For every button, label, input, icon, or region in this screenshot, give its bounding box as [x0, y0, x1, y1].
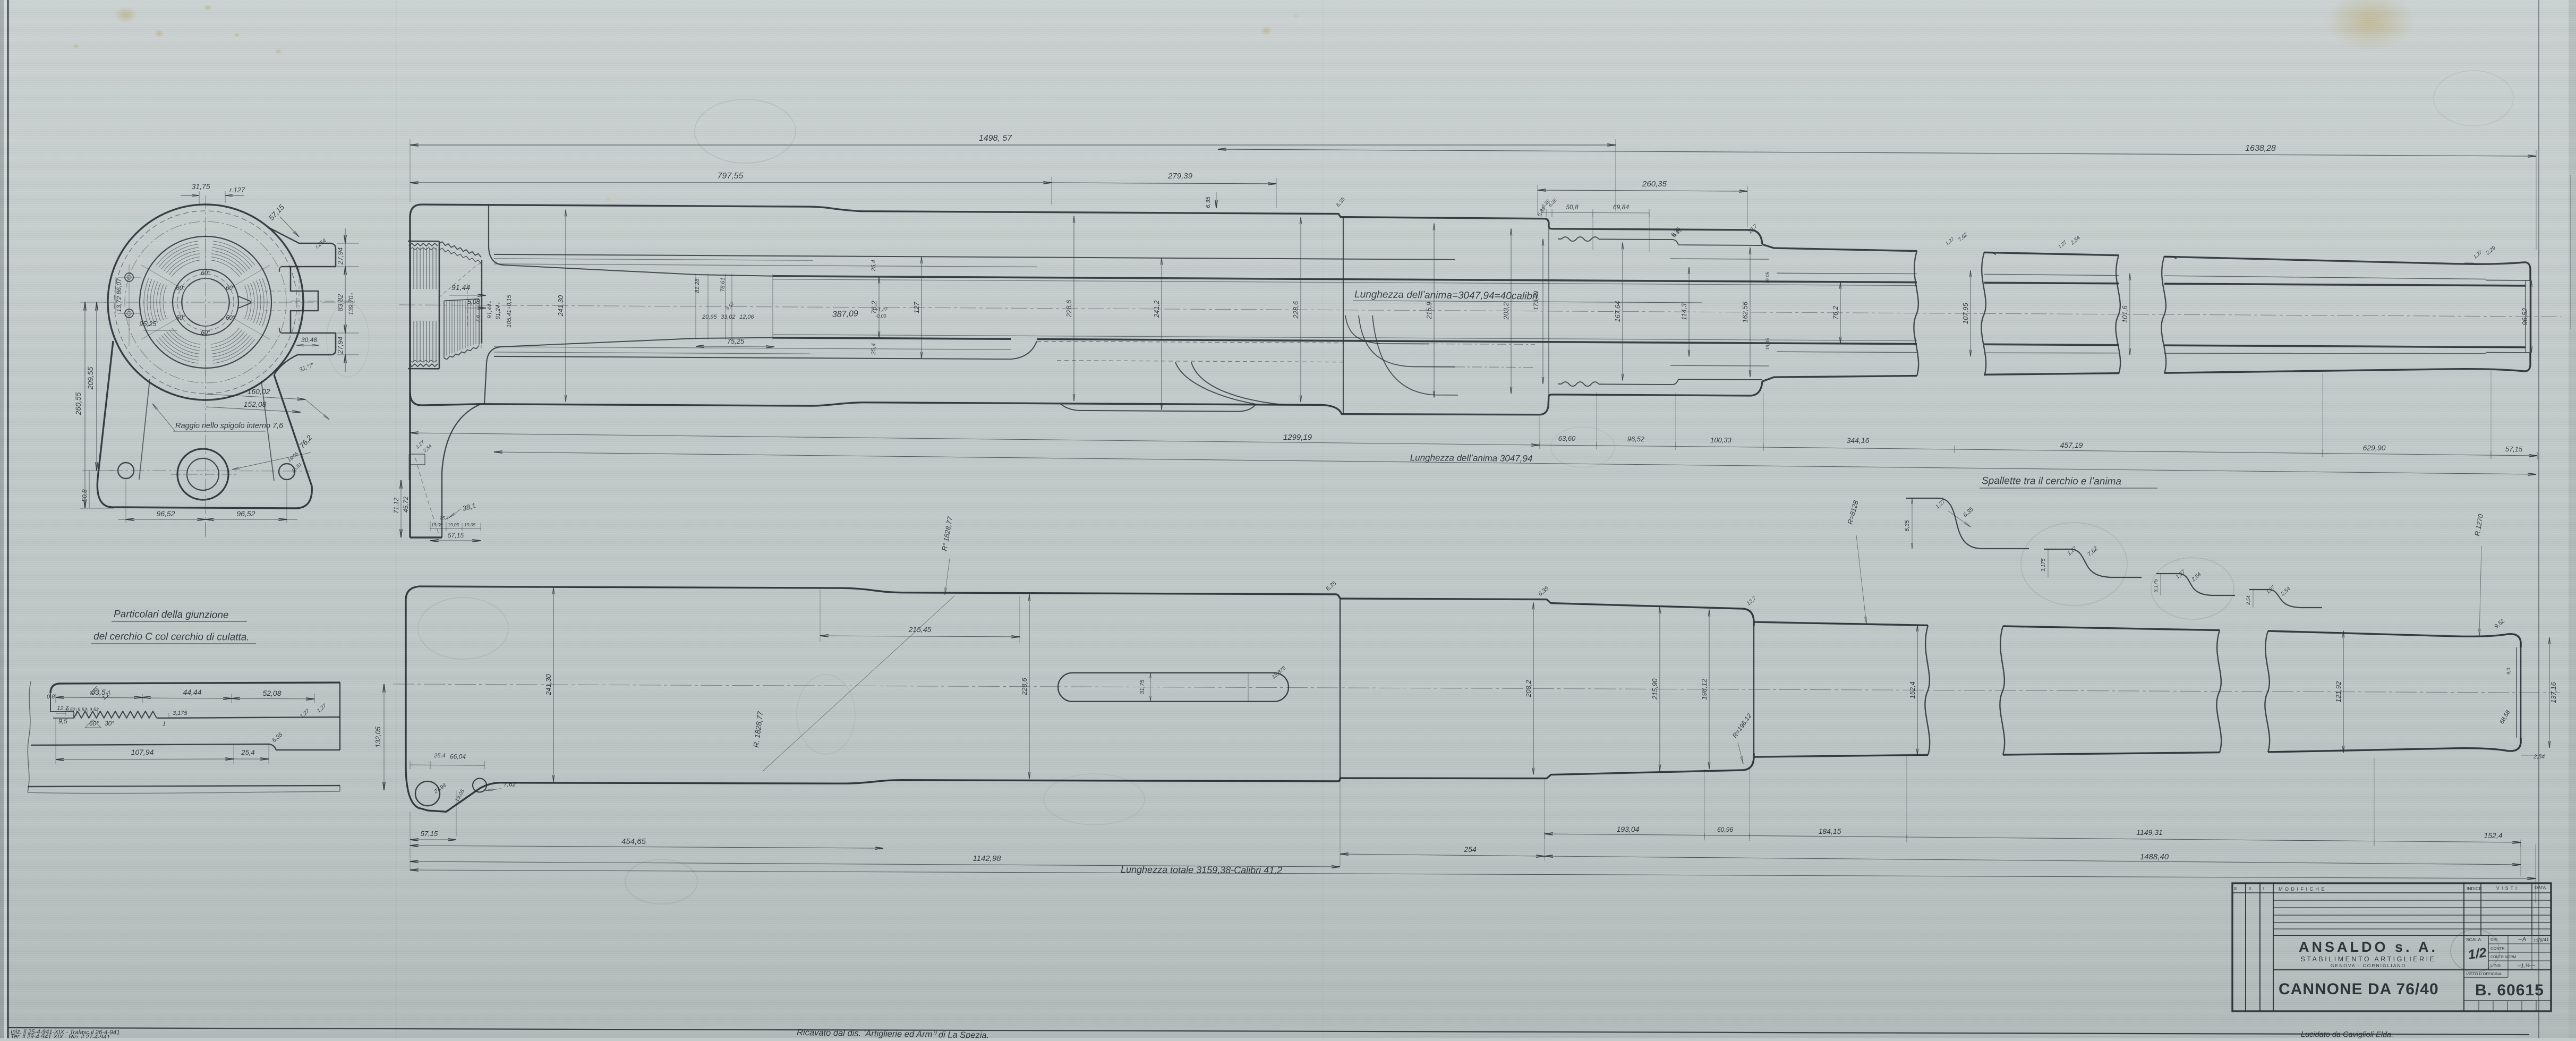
svg-text:25,4: 25,4 [433, 753, 445, 759]
svg-text:215,45: 215,45 [908, 625, 932, 634]
svg-text:∼A: ∼A [2517, 936, 2527, 943]
svg-text:78,61: 78,61 [720, 277, 726, 292]
svg-text:STABILIMENTO ARTIGLIERIE: STABILIMENTO ARTIGLIERIE [2301, 955, 2436, 963]
svg-text:V I S T I: V I S T I [2496, 885, 2517, 891]
svg-text:629,90: 629,90 [2363, 443, 2386, 452]
svg-text:30,48: 30,48 [301, 336, 317, 344]
svg-text:9,52: 9,52 [66, 707, 75, 712]
svg-text:5,08: 5,08 [467, 298, 480, 305]
svg-text:241,30: 241,30 [544, 673, 552, 696]
svg-text:12,06: 12,06 [739, 314, 754, 320]
svg-text:3,175: 3,175 [2153, 579, 2159, 592]
svg-text:Raggio nello spigolo interno 7: Raggio nello spigolo interno 7,6 [175, 422, 284, 430]
svg-text:454,65: 454,65 [621, 837, 646, 846]
svg-text:152,4: 152,4 [1908, 681, 1916, 699]
svg-text:9,0: 9,0 [2506, 668, 2511, 675]
svg-text:160,02: 160,02 [248, 387, 270, 396]
svg-text:1498, 57: 1498, 57 [979, 134, 1012, 143]
svg-text:LʼING: LʼING [2490, 963, 2501, 968]
svg-text:7,6: 7,6 [475, 315, 481, 322]
svg-text:228,6: 228,6 [1292, 301, 1300, 319]
svg-text:DIS.: DIS. [2490, 937, 2499, 942]
svg-text:25,4: 25,4 [871, 343, 877, 355]
svg-text:6,35: 6,35 [1904, 519, 1910, 531]
svg-text:del cerchio C col cerchio di c: del cerchio C col cerchio di culatta. [93, 631, 250, 643]
svg-text:60,96: 60,96 [1717, 826, 1733, 833]
svg-text:344,16: 344,16 [1847, 436, 1870, 445]
svg-text:7,62: 7,62 [504, 781, 516, 788]
svg-text:25,4: 25,4 [871, 260, 877, 271]
svg-text:2,54: 2,54 [2246, 595, 2251, 605]
svg-text:50,8: 50,8 [1566, 203, 1579, 211]
svg-text:96,52: 96,52 [156, 509, 175, 518]
svg-text:1488,40: 1488,40 [2140, 852, 2169, 861]
svg-text:107,95: 107,95 [1961, 303, 1969, 325]
svg-text:60°: 60° [176, 285, 186, 292]
svg-text:25,4: 25,4 [439, 515, 449, 520]
svg-text:19,05: 19,05 [431, 522, 443, 527]
svg-text:121,92: 121,92 [2334, 681, 2342, 703]
svg-text:203,2: 203,2 [1524, 679, 1532, 697]
svg-text:162,56: 162,56 [1741, 301, 1749, 323]
svg-text:203,2: 203,2 [1502, 302, 1510, 320]
svg-text:101,6: 101,6 [2121, 305, 2129, 323]
svg-text:r.127: r.127 [229, 186, 245, 194]
svg-text:209,55: 209,55 [86, 366, 95, 390]
svg-text:114,3: 114,3 [1680, 303, 1688, 320]
svg-text:69,84: 69,84 [1613, 203, 1629, 211]
svg-text:Ter. il 29-4-941-XIX - Rip.: Ter. il 29-4-941-XIX - Rip. il 27-4-941. [11, 1034, 112, 1038]
svg-text:6,35: 6,35 [1205, 196, 1212, 208]
svg-text:1142,98: 1142,98 [973, 854, 1001, 863]
svg-text:VISTO DʼOFFICINA: VISTO DʼOFFICINA [2466, 971, 2502, 976]
svg-text:66,04: 66,04 [450, 753, 466, 760]
svg-text:SCALA:: SCALA: [2466, 937, 2482, 942]
svg-text:279,39: 279,39 [1167, 172, 1193, 181]
svg-text:127: 127 [912, 302, 920, 313]
svg-text:60°: 60° [226, 285, 235, 292]
svg-text:215,9: 215,9 [1425, 302, 1433, 320]
svg-text:13,72 86,07: 13,72 86,07 [115, 278, 123, 312]
svg-text:CANNONE DA 76/40: CANNONE DA 76/40 [2279, 980, 2439, 998]
svg-text:241,2: 241,2 [1153, 300, 1161, 318]
svg-text:27,94: 27,94 [336, 248, 344, 266]
svg-text:76,2: 76,2 [1831, 305, 1839, 319]
svg-text:52,08: 52,08 [262, 689, 281, 697]
svg-text:Spallette tra il cerchio e: Spallette tra il cerchio e lʼanima [1982, 475, 2121, 487]
svg-text:CONTR.NORM: CONTR.NORM [2490, 955, 2516, 959]
svg-text:457,19: 457,19 [2060, 441, 2083, 449]
svg-text:25,4: 25,4 [241, 748, 254, 756]
svg-text:91,44₊: 91,44₊ [487, 301, 493, 319]
svg-text:152,4: 152,4 [2484, 831, 2502, 840]
svg-text:57,15: 57,15 [2505, 445, 2523, 453]
svg-text:71,12: 71,12 [393, 498, 400, 514]
svg-text:60°: 60° [176, 315, 186, 321]
svg-text:Lunghezza dellʼanima=3047,94=4: Lunghezza dellʼanima=3047,94=40calibri [1354, 289, 1538, 302]
svg-text:75,25: 75,25 [727, 337, 745, 345]
svg-text:20,95: 20,95 [702, 314, 717, 320]
svg-text:228,6: 228,6 [1020, 678, 1028, 696]
svg-text:CONTR: CONTR [2490, 946, 2505, 951]
svg-text:254: 254 [1463, 845, 1477, 854]
svg-text:198,12: 198,12 [1700, 678, 1708, 700]
svg-text:1149,31: 1149,31 [2136, 828, 2163, 837]
svg-text:30°: 30° [105, 720, 114, 727]
svg-text:19,05: 19,05 [448, 522, 459, 527]
svg-text:III: III [2234, 886, 2238, 891]
svg-text:107,94: 107,94 [131, 748, 154, 756]
svg-text:0,8: 0,8 [47, 694, 55, 700]
svg-text:60°: 60° [226, 315, 235, 321]
svg-text:44,44: 44,44 [183, 688, 201, 696]
svg-text:Lunghezza dellʼanima 3047,94: Lunghezza dellʼanima 3047,94 [1410, 453, 1533, 464]
svg-text:∼1,½―: ∼1,½― [2517, 962, 2536, 969]
svg-text:2,54: 2,54 [2533, 754, 2545, 760]
svg-text:19,05: 19,05 [1765, 271, 1770, 284]
svg-text:105,41+0,15: 105,41+0,15 [506, 294, 513, 327]
svg-text:3,175: 3,175 [2041, 558, 2046, 571]
svg-text:387,09: 387,09 [832, 309, 859, 319]
svg-text:137,16: 137,16 [2549, 681, 2557, 703]
svg-text:DATA: DATA [2535, 885, 2546, 890]
svg-text:228,6: 228,6 [1065, 300, 1073, 318]
svg-text:3,175: 3,175 [173, 710, 187, 716]
svg-text:1638,28: 1638,28 [2245, 144, 2276, 153]
svg-text:57,15: 57,15 [421, 830, 438, 838]
svg-text:260,35: 260,35 [1642, 180, 1667, 189]
svg-text:260,55: 260,55 [74, 392, 82, 415]
svg-text:II: II [2249, 886, 2251, 891]
svg-text:33,02: 33,02 [721, 314, 736, 320]
svg-text:1299,19: 1299,19 [1283, 433, 1312, 442]
svg-text:M O D I F I C H E: M O D I F I C H E [2279, 886, 2325, 892]
svg-text:152,08: 152,08 [244, 400, 267, 408]
svg-text:241,30: 241,30 [557, 295, 565, 317]
svg-text:27,94: 27,94 [336, 337, 344, 355]
svg-text:Lucidato da Caviglioli Eld: Lucidato da Caviglioli Elda. [2301, 1030, 2393, 1038]
svg-text:45,72: 45,72 [402, 497, 410, 513]
svg-text:167,64: 167,64 [1614, 301, 1622, 322]
svg-text:95,25: 95,25 [139, 320, 157, 328]
svg-text:9,52: 9,52 [89, 707, 99, 712]
svg-text:83,82: 83,82 [336, 294, 344, 311]
svg-text:Particolari della giunzione: Particolari della giunzione [114, 609, 229, 621]
svg-text:50,8: 50,8 [81, 489, 88, 502]
svg-text:I: I [2263, 886, 2264, 891]
svg-text:193,04: 193,04 [1617, 825, 1640, 833]
svg-text:96,52: 96,52 [1627, 435, 1645, 443]
svg-text:81,28: 81,28 [694, 278, 701, 293]
svg-text:63,60: 63,60 [1558, 434, 1576, 442]
svg-text:ANSALDO s. A.: ANSALDO s. A. [2299, 939, 2438, 955]
svg-text:31,75: 31,75 [1139, 679, 1146, 694]
svg-text:184,15: 184,15 [1819, 827, 1841, 835]
svg-text:76,2: 76,2 [870, 300, 878, 314]
svg-text:797,55: 797,55 [718, 172, 744, 181]
svg-text:215,90: 215,90 [1651, 678, 1659, 701]
svg-text:1: 1 [163, 721, 166, 727]
svg-text:19,05: 19,05 [1765, 338, 1770, 351]
svg-text:100,33: 100,33 [1710, 436, 1732, 444]
svg-text:INDICE: INDICE [2467, 886, 2482, 891]
svg-text:9,52: 9,52 [78, 707, 87, 712]
svg-text:GENOVA - CORNIGLIANO: GENOVA - CORNIGLIANO [2331, 963, 2406, 968]
svg-text:139,70₊: 139,70₊ [347, 292, 355, 315]
svg-text:91,44: 91,44 [451, 283, 470, 292]
svg-text:132,05: 132,05 [374, 726, 382, 748]
svg-text:31,75: 31,75 [191, 182, 210, 191]
svg-text:B. 60615: B. 60615 [2475, 982, 2544, 999]
svg-text:96,52: 96,52 [236, 509, 255, 518]
svg-text:19,05: 19,05 [464, 522, 476, 527]
svg-text:1/2: 1/2 [2467, 945, 2487, 962]
svg-text:9,5: 9,5 [58, 718, 67, 725]
svg-text:Lunghezza totale 3159,38-Calib: Lunghezza totale 3159,38-Calibri 41,2 [1121, 864, 1282, 876]
svg-text:96,52: 96,52 [2521, 308, 2529, 325]
svg-text:57,15: 57,15 [448, 532, 464, 539]
svg-text:91,24₊: 91,24₊ [495, 302, 501, 320]
